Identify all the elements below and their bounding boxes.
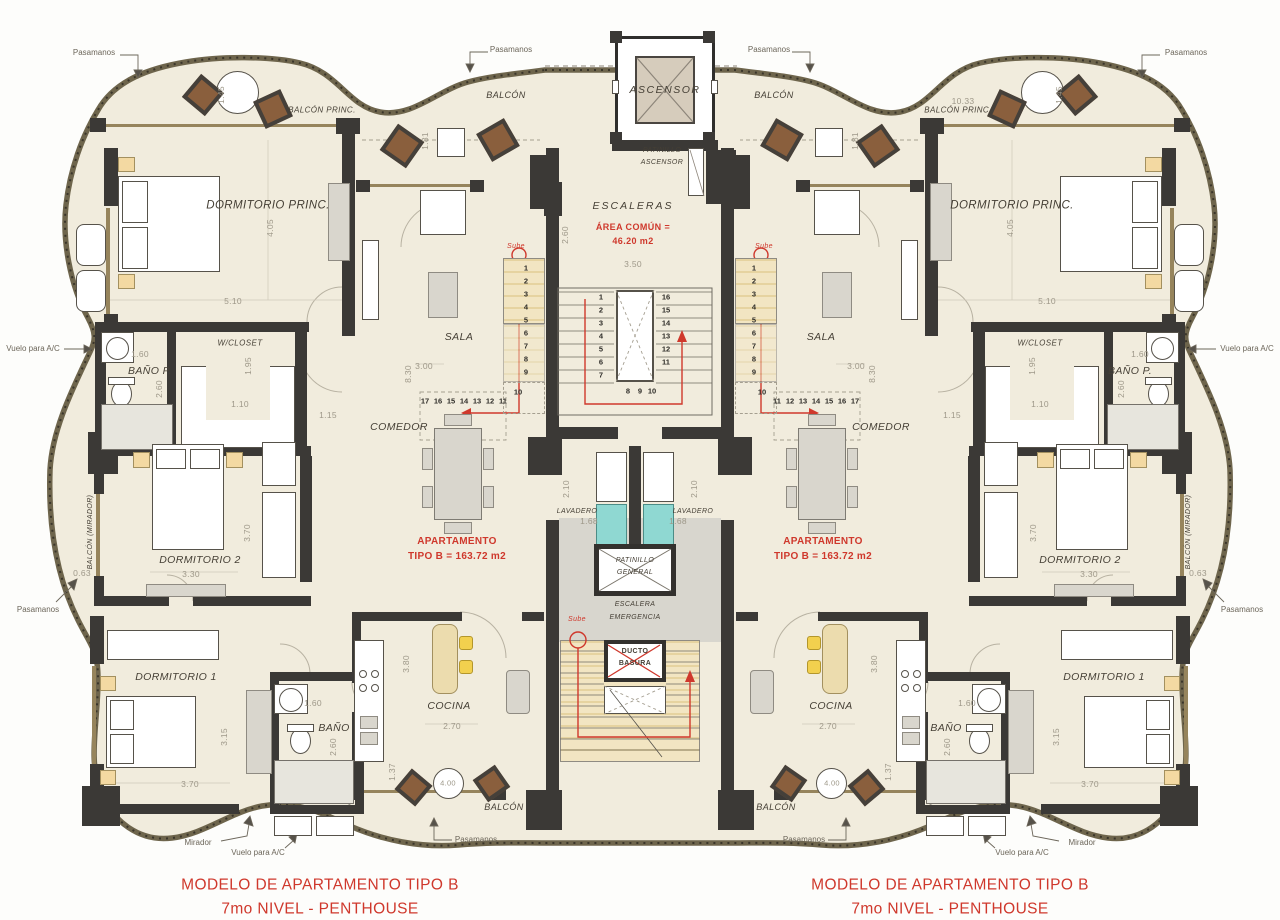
label-lavadero: LAVADERO xyxy=(557,508,598,516)
stair-number: 7 xyxy=(599,371,603,379)
title-left-line2: 7mo NIVEL - PENTHOUSE xyxy=(221,901,418,917)
title-right-line1: MODELO DE APARTAMENTO TIPO B xyxy=(811,877,1089,893)
label-ascensor: ASCENSOR xyxy=(630,85,701,97)
dim: 2.10 xyxy=(562,480,571,498)
label-lavadero: LAVADERO xyxy=(673,508,714,516)
label-patinillo-ascensor: PATINILLO xyxy=(643,147,681,155)
dim: 2.10 xyxy=(690,480,699,498)
stair-number: 13 xyxy=(662,332,670,340)
stair-number: 14 xyxy=(662,319,670,327)
dim: 10.33 xyxy=(952,97,975,106)
dim: 1.68 xyxy=(669,517,687,526)
stair-number: 9 xyxy=(638,387,642,395)
stair-number: 11 xyxy=(662,358,670,366)
label-patinillo-ascensor: ASCENSOR xyxy=(641,159,684,167)
label-area-comun: ÁREA COMÚN = xyxy=(596,223,670,233)
dim: 2.60 xyxy=(561,226,570,244)
dim: 3.50 xyxy=(624,260,642,269)
stair-number: 3 xyxy=(599,319,603,327)
floor-plan: BALCÓN PRINC. DORMITORIO PRINC. SALA W/C… xyxy=(0,0,1280,920)
stair-number: 10 xyxy=(648,387,656,395)
stair-number: 16 xyxy=(662,293,670,301)
dim: 1.68 xyxy=(580,517,598,526)
stair-sube-label: Sube xyxy=(568,616,586,624)
label-escalera-emergencia: ESCALERA xyxy=(615,601,656,609)
stair-number: 5 xyxy=(599,345,603,353)
label-escalera-emergencia: EMERGENCIA xyxy=(609,614,660,622)
label-patinillo-general: PATINILLO xyxy=(616,557,654,565)
core-labels: ASCENSOR PATINILLO ASCENSOR ESCALERAS ÁR… xyxy=(0,0,1280,920)
stair-number: 2 xyxy=(599,306,603,314)
stair-number: 12 xyxy=(662,345,670,353)
stair-number: 6 xyxy=(599,358,603,366)
title-right-line2: 7mo NIVEL - PENTHOUSE xyxy=(851,901,1048,917)
label-patinillo-general: GENERAL xyxy=(617,569,653,577)
title-left-line1: MODELO DE APARTAMENTO TIPO B xyxy=(181,877,459,893)
label-ducto: BASURA xyxy=(619,660,651,668)
stair-number: 1 xyxy=(599,293,603,301)
label-escaleras: ESCALERAS xyxy=(592,201,673,213)
stair-number: 15 xyxy=(662,306,670,314)
label-area-comun-value: 46.20 m2 xyxy=(612,237,653,247)
label-ducto: DUCTO xyxy=(622,648,649,656)
stair-number: 8 xyxy=(626,387,630,395)
stair-number: 4 xyxy=(599,332,603,340)
